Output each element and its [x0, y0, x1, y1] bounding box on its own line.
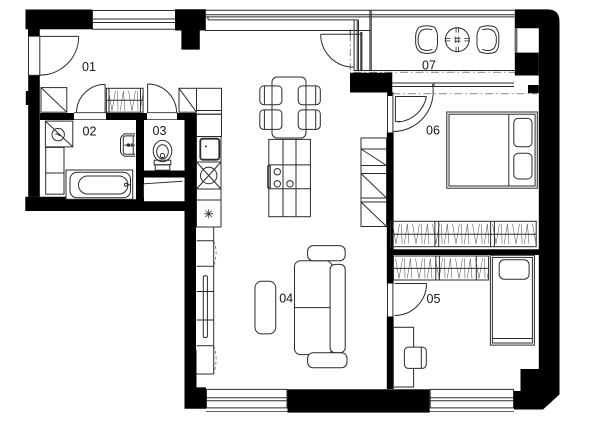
svg-text:04: 04 — [279, 292, 293, 306]
svg-text:05: 05 — [427, 292, 441, 306]
svg-text:01: 01 — [82, 60, 96, 74]
svg-text:07: 07 — [422, 59, 436, 73]
svg-text:06: 06 — [426, 124, 440, 138]
svg-text:03: 03 — [153, 124, 167, 138]
svg-text:02: 02 — [83, 124, 97, 138]
